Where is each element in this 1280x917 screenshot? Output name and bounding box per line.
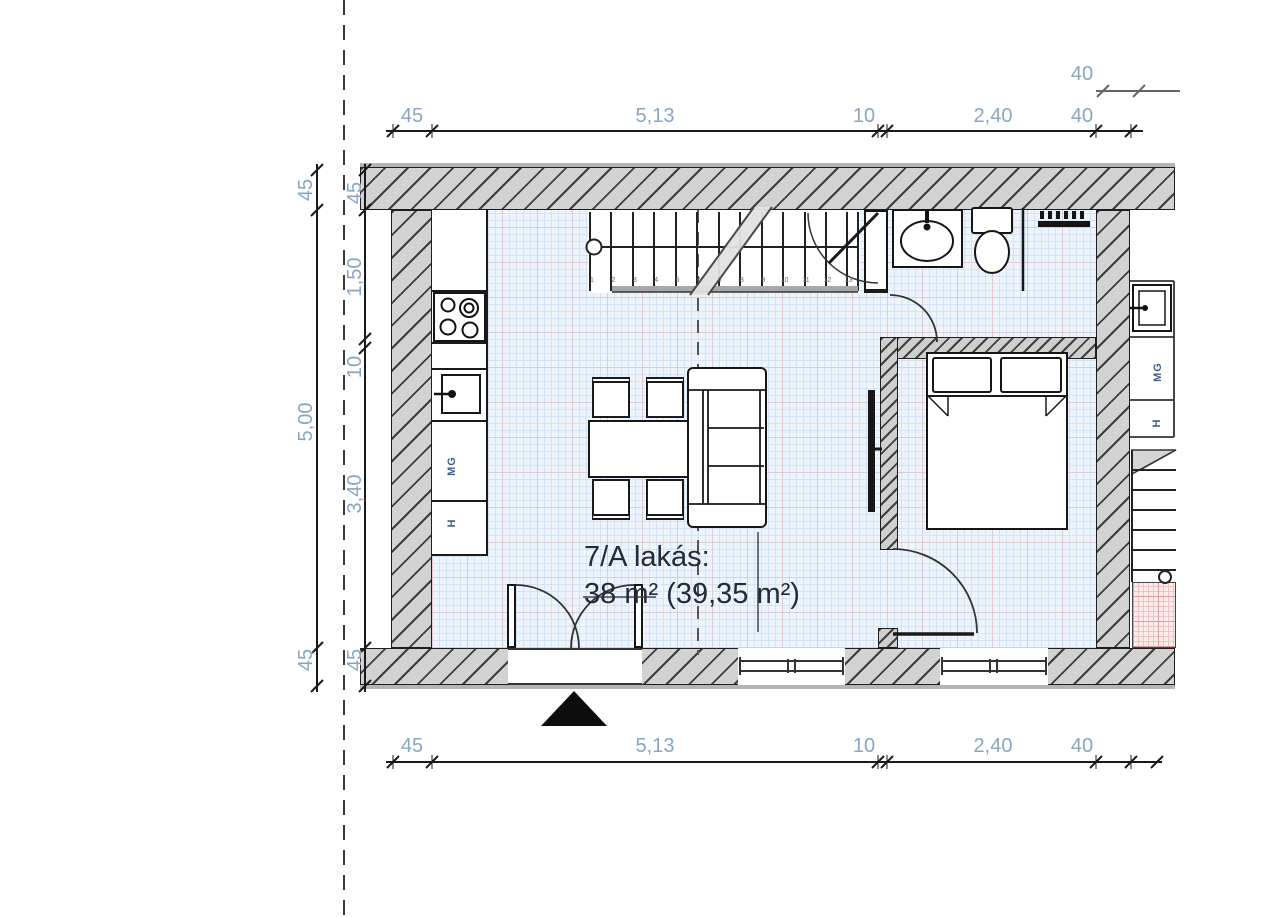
plan-linework	[0, 0, 1280, 917]
dim-left-inner-340: 3,40	[325, 468, 385, 520]
top-dimension-line	[386, 124, 1143, 138]
stair-newel-post	[587, 240, 602, 255]
radiator-fins	[1042, 211, 1082, 219]
floor-plan-canvas: MG H	[0, 0, 1280, 917]
basin-tap-knob	[924, 224, 931, 231]
bathroom-door-arc	[890, 295, 937, 342]
window-right-glazing	[942, 657, 1046, 675]
dim-left-inner-45-bottom: 45	[335, 640, 375, 680]
dim-top-10: 10	[846, 104, 882, 128]
dim-top-40: 40	[1062, 104, 1102, 128]
entrance-triangle-marker	[541, 691, 607, 726]
cooktop-burners	[441, 299, 479, 338]
stair-door-leaf	[829, 213, 878, 263]
top-offset-dimension-line	[1096, 85, 1180, 97]
dim-left-outer-45-bottom: 45	[286, 640, 326, 680]
dim-top-offset-40: 40	[1062, 62, 1102, 86]
dim-top-45: 45	[392, 104, 432, 128]
dim-left-inner-45-top: 45	[335, 173, 375, 213]
stair-break-line	[690, 207, 754, 295]
dim-top-513: 5,13	[615, 104, 695, 128]
sofa-detail-lines	[689, 390, 765, 504]
dim-bottom-240: 2,40	[958, 734, 1028, 758]
neighbor-stairs	[1132, 450, 1176, 583]
toilet-bowl	[975, 231, 1009, 273]
dim-top-240: 2,40	[958, 104, 1028, 128]
blanket-fold-left	[928, 396, 948, 416]
blanket-fold-right	[1046, 396, 1066, 416]
dim-left-outer-500: 5,00	[276, 397, 336, 447]
dim-left-inner-150: 1,50	[325, 251, 385, 303]
bottom-dimension-line	[386, 755, 1163, 769]
dim-bottom-513: 5,13	[615, 734, 695, 758]
bedroom-door-arc	[893, 549, 977, 633]
dim-bottom-10: 10	[846, 734, 882, 758]
dim-left-outer-45-top: 45	[286, 170, 326, 210]
entry-door-arc-left	[516, 585, 579, 648]
left-inner-dimension-line	[359, 164, 371, 692]
dim-bottom-45: 45	[392, 734, 432, 758]
unit-area-label: 38 m² (39,35 m²)	[584, 577, 800, 611]
neighbor-dishwasher-label: MG	[1138, 352, 1178, 392]
dim-left-inner-10: 10	[337, 348, 373, 386]
unit-name-label: 7/A lakás:	[584, 540, 710, 574]
window-left-glazing	[740, 657, 843, 675]
dim-bottom-40: 40	[1062, 734, 1102, 758]
neighbor-fridge-label: H	[1139, 405, 1175, 441]
stair-break-fill	[690, 207, 772, 295]
toilet-tank	[972, 208, 1012, 233]
kitchen-faucet-knob	[448, 390, 456, 398]
